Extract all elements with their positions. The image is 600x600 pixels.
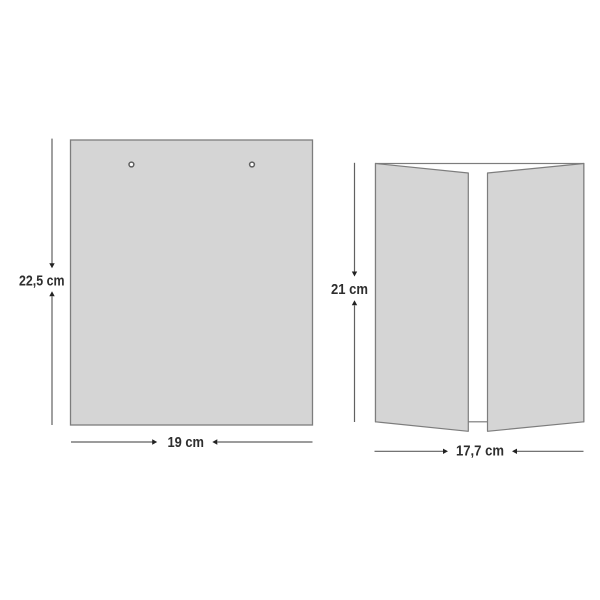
svg-text:22,5 cm: 22,5 cm	[19, 272, 65, 289]
svg-text:17,7 cm: 17,7 cm	[456, 443, 504, 460]
svg-text:19 cm: 19 cm	[168, 434, 205, 451]
svg-text:21 cm: 21 cm	[331, 281, 368, 298]
